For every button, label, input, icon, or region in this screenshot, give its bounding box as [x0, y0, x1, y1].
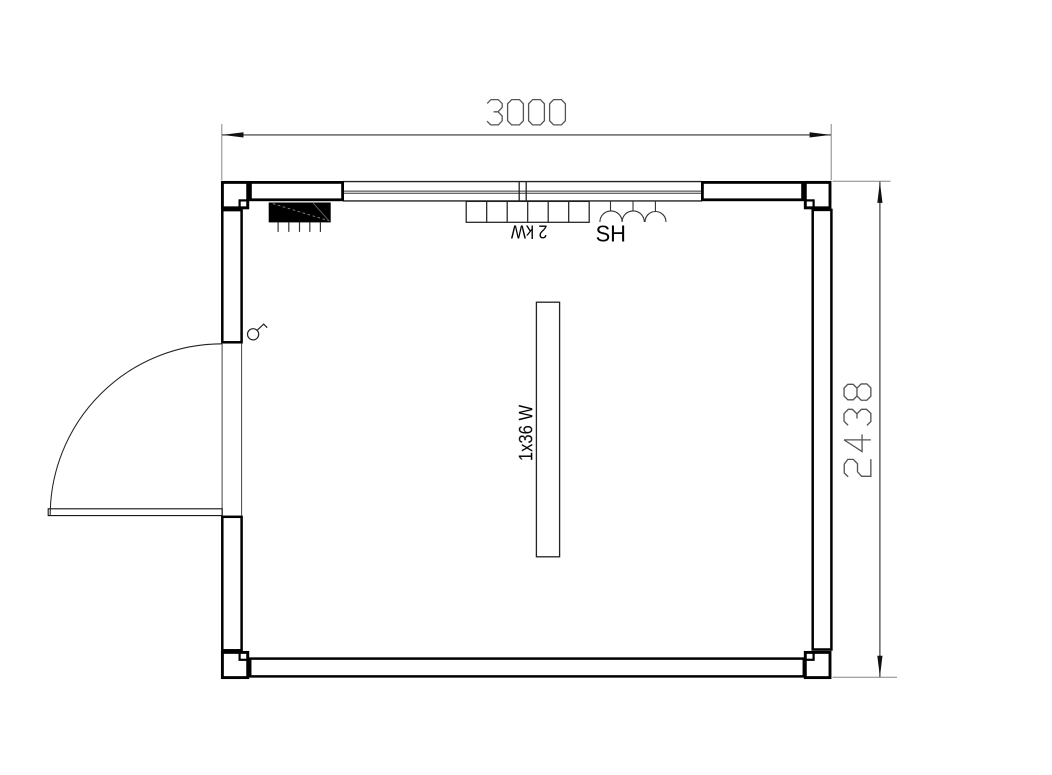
svg-text:2 kW: 2 kW	[510, 221, 547, 242]
svg-text:SH: SH	[596, 221, 626, 247]
svg-text:1x36 W: 1x36 W	[515, 405, 537, 461]
